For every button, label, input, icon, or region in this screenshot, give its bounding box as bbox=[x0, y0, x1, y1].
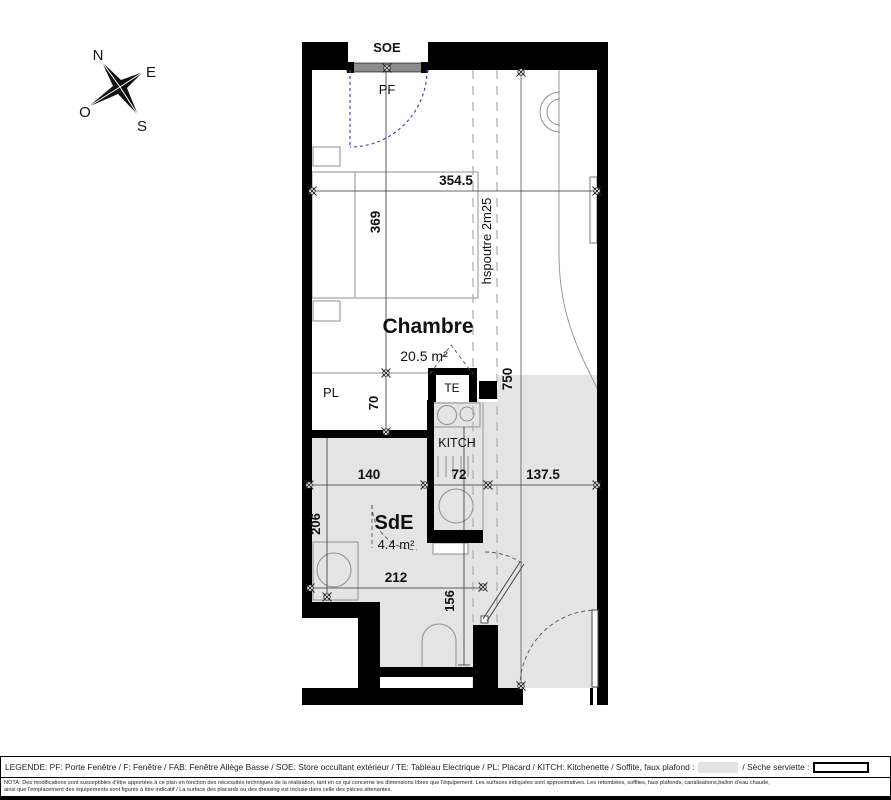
nightstand-bottom bbox=[313, 301, 340, 321]
dim-hall-depth: 156 bbox=[442, 590, 457, 612]
legend-text: LEGENDE: PF: Porte Fenêtre / F: Fenêtre … bbox=[5, 762, 694, 772]
sde-area: 4.4 m² bbox=[378, 537, 416, 552]
dim-chambre-depth: 369 bbox=[368, 211, 383, 234]
te-label: TE bbox=[444, 381, 459, 395]
legend-text-2: / Sèche serviette : bbox=[742, 762, 809, 772]
entrance-frame-right bbox=[590, 688, 593, 705]
nota-line1: NOTA: Des modifications sont susceptible… bbox=[4, 780, 887, 787]
nota-block: NOTA: Des modifications sont susceptible… bbox=[1, 778, 890, 795]
legend-row: LEGENDE: PF: Porte Fenêtre / F: Fenêtre … bbox=[1, 757, 890, 778]
wall-sde-door-pier bbox=[473, 625, 498, 688]
sde-name: SdE bbox=[375, 512, 414, 534]
compass-west-label: O bbox=[79, 104, 91, 121]
pf-label: PF bbox=[379, 82, 396, 97]
chambre-name: Chambre bbox=[382, 315, 473, 338]
wall-te-side bbox=[479, 381, 497, 399]
wall-kitchen-left bbox=[427, 400, 434, 532]
beam-label: hspoutre 2m25 bbox=[479, 198, 494, 285]
dim-top-width: 354.5 bbox=[439, 173, 473, 188]
compass-south-label: S bbox=[137, 118, 147, 135]
compass-east-label: E bbox=[146, 64, 156, 81]
towel-dryer-swatch bbox=[813, 762, 869, 773]
wall-right bbox=[597, 42, 608, 705]
dim-left-width: 140 bbox=[358, 467, 381, 482]
compass-rose: N E O S bbox=[79, 47, 156, 135]
wall-closet-bottom bbox=[302, 430, 428, 438]
wall-wc-sill bbox=[380, 667, 473, 677]
soe-label: SOE bbox=[373, 40, 401, 55]
dim-sde-depth: 206 bbox=[308, 513, 323, 535]
chambre-area: 20.5 m² bbox=[400, 348, 448, 364]
dim-total-depth: 750 bbox=[500, 368, 515, 391]
wall-niche-arcs bbox=[540, 92, 560, 132]
low-window-opening bbox=[380, 677, 472, 688]
floorplan-page: N E O S bbox=[0, 0, 891, 800]
wall-bottom bbox=[302, 688, 520, 705]
compass-north-label: N bbox=[93, 47, 104, 64]
kitchen-shelf bbox=[433, 543, 468, 554]
wall-top-right bbox=[428, 42, 608, 70]
dim-right-width: 137.5 bbox=[526, 467, 560, 482]
kitch-label: KITCH bbox=[438, 436, 476, 450]
dim-kitchen-width: 72 bbox=[451, 467, 466, 482]
soffite-swatch bbox=[698, 762, 738, 773]
floorplan-drawing: N E O S bbox=[0, 0, 891, 756]
wall-bottom-left-h bbox=[302, 602, 380, 618]
wall-bottom-left-v bbox=[358, 618, 380, 688]
nota-line2: ainsi que l'emplacement des équipements … bbox=[4, 787, 887, 794]
dim-sde-width: 212 bbox=[385, 570, 408, 585]
wall-kitchen-bottom bbox=[427, 530, 483, 543]
bottom-bar bbox=[1, 796, 890, 800]
nightstand-top bbox=[313, 147, 340, 166]
compass-star bbox=[88, 62, 143, 115]
footer: LEGENDE: PF: Porte Fenêtre / F: Fenêtre … bbox=[0, 756, 891, 800]
entrance-frame-left bbox=[520, 688, 523, 705]
pl-label: PL bbox=[323, 385, 339, 400]
dim-pl-depth: 70 bbox=[366, 396, 381, 410]
